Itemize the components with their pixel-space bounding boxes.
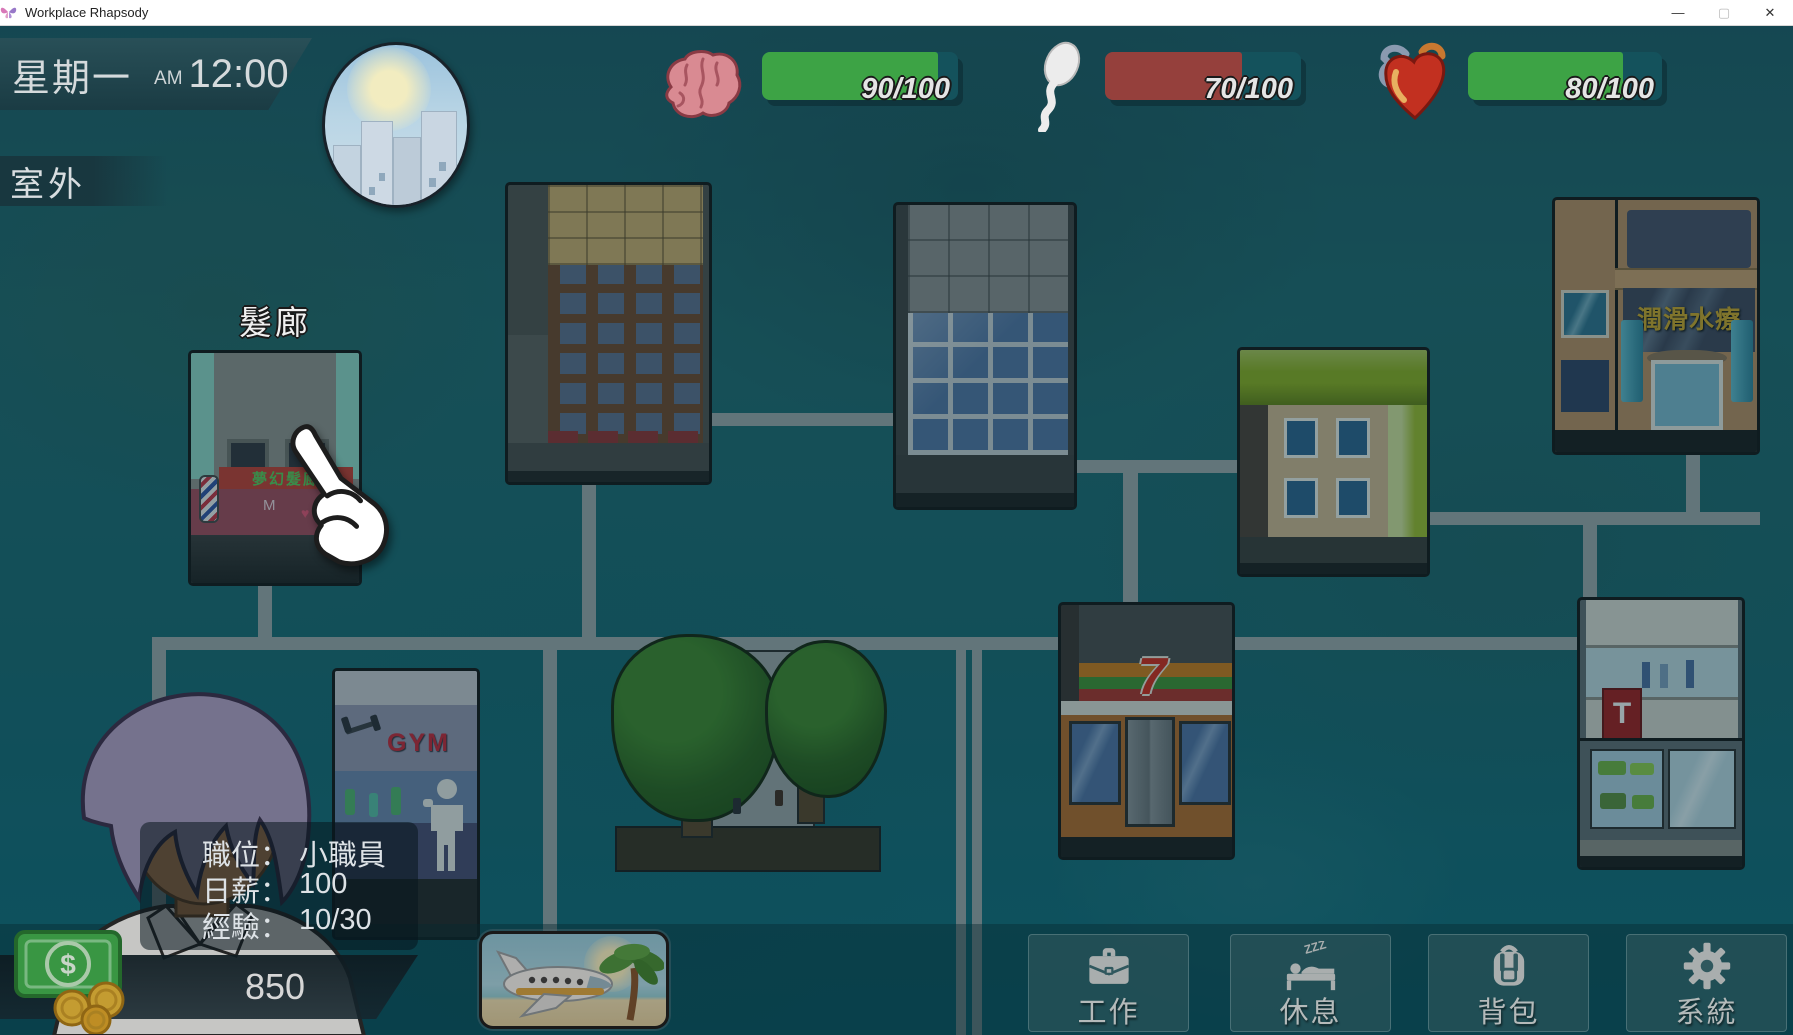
road-upper-east bbox=[1060, 460, 1242, 473]
stat-bar-intellect: 90/100 bbox=[762, 52, 958, 100]
travel-button[interactable] bbox=[479, 931, 669, 1029]
money-amount: 850 bbox=[190, 966, 360, 1008]
minimize-button[interactable]: — bbox=[1655, 0, 1701, 25]
gym-figure-icon bbox=[421, 775, 473, 875]
stat-value-intellect: 90/100 bbox=[861, 73, 950, 106]
stat-bar-libido: 70/100 bbox=[1105, 52, 1301, 100]
stat-value-health: 80/100 bbox=[1565, 73, 1654, 106]
briefcase-icon bbox=[1080, 941, 1138, 991]
window-title: Workplace Rhapsody bbox=[25, 5, 148, 20]
stat-value-libido: 70/100 bbox=[1204, 73, 1293, 106]
time-label: 12:00 bbox=[189, 52, 289, 97]
bag-button[interactable]: 背包 bbox=[1428, 934, 1589, 1032]
maximize-button[interactable]: ▢ bbox=[1701, 0, 1747, 25]
road-toystore-spur bbox=[1583, 520, 1597, 602]
rest-button[interactable]: ZZZ 休息 bbox=[1230, 934, 1391, 1032]
system-button[interactable]: 系統 bbox=[1626, 934, 1787, 1032]
stat-bar-health: 80/100 bbox=[1468, 52, 1662, 100]
meridiem-label: AM bbox=[154, 68, 183, 90]
location-label: 室外 bbox=[10, 157, 86, 206]
building-green-house[interactable] bbox=[1237, 347, 1430, 577]
gym-sign: GYM bbox=[387, 729, 450, 758]
toy-store-logo: T bbox=[1602, 688, 1642, 740]
svg-text:$: $ bbox=[60, 949, 76, 980]
hand-cursor-icon bbox=[282, 418, 390, 568]
backpack-icon bbox=[1480, 941, 1538, 991]
airplane-icon bbox=[486, 942, 616, 1018]
road-spa-spur bbox=[1686, 450, 1700, 516]
hair-salon-label: 髮廊 bbox=[188, 296, 362, 344]
day-time-banner: 星期一 AM 12:00 bbox=[0, 38, 312, 110]
butterfly-icon bbox=[0, 4, 17, 21]
location-banner: 室外 bbox=[0, 156, 168, 206]
window-titlebar: Workplace Rhapsody — ▢ ✕ bbox=[0, 0, 1793, 26]
building-apartment[interactable] bbox=[505, 182, 712, 485]
building-spa[interactable]: 潤滑水療 bbox=[1552, 197, 1760, 455]
svg-text:ZZZ: ZZZ bbox=[1302, 941, 1328, 957]
seven-logo: 7 bbox=[1127, 649, 1177, 705]
building-office-tower[interactable] bbox=[893, 202, 1077, 510]
heart-icon bbox=[1376, 40, 1454, 122]
building-toy-store[interactable]: T bbox=[1577, 597, 1745, 870]
bed-icon: ZZZ bbox=[1278, 941, 1344, 991]
work-button[interactable]: 工作 bbox=[1028, 934, 1189, 1032]
building-park[interactable] bbox=[615, 640, 877, 868]
barber-pole-icon bbox=[199, 475, 219, 523]
road-salon-spur bbox=[258, 580, 272, 642]
cash-icon: $ bbox=[10, 924, 140, 1034]
game-window: Workplace Rhapsody — ▢ ✕ 髮廊 夢幻髮廊 M ♥ bbox=[0, 0, 1793, 1035]
day-label: 星期一 bbox=[12, 47, 132, 102]
brain-icon bbox=[658, 46, 744, 124]
close-button[interactable]: ✕ bbox=[1747, 0, 1793, 25]
road-main-east bbox=[1232, 637, 1595, 650]
info-row-experience: 經驗：10/30 bbox=[202, 904, 418, 940]
info-row-position: 職位：小職員 bbox=[202, 832, 418, 868]
player-info-panel: 職位：小職員 日薪：100 經驗：10/30 bbox=[140, 822, 418, 950]
weather-icon bbox=[322, 42, 470, 208]
gear-icon bbox=[1678, 941, 1736, 991]
sperm-icon bbox=[1010, 38, 1086, 132]
building-convenience-store[interactable]: 7 bbox=[1058, 602, 1235, 860]
park-tree-small bbox=[765, 640, 887, 798]
info-row-salary: 日薪：100 bbox=[202, 868, 418, 904]
